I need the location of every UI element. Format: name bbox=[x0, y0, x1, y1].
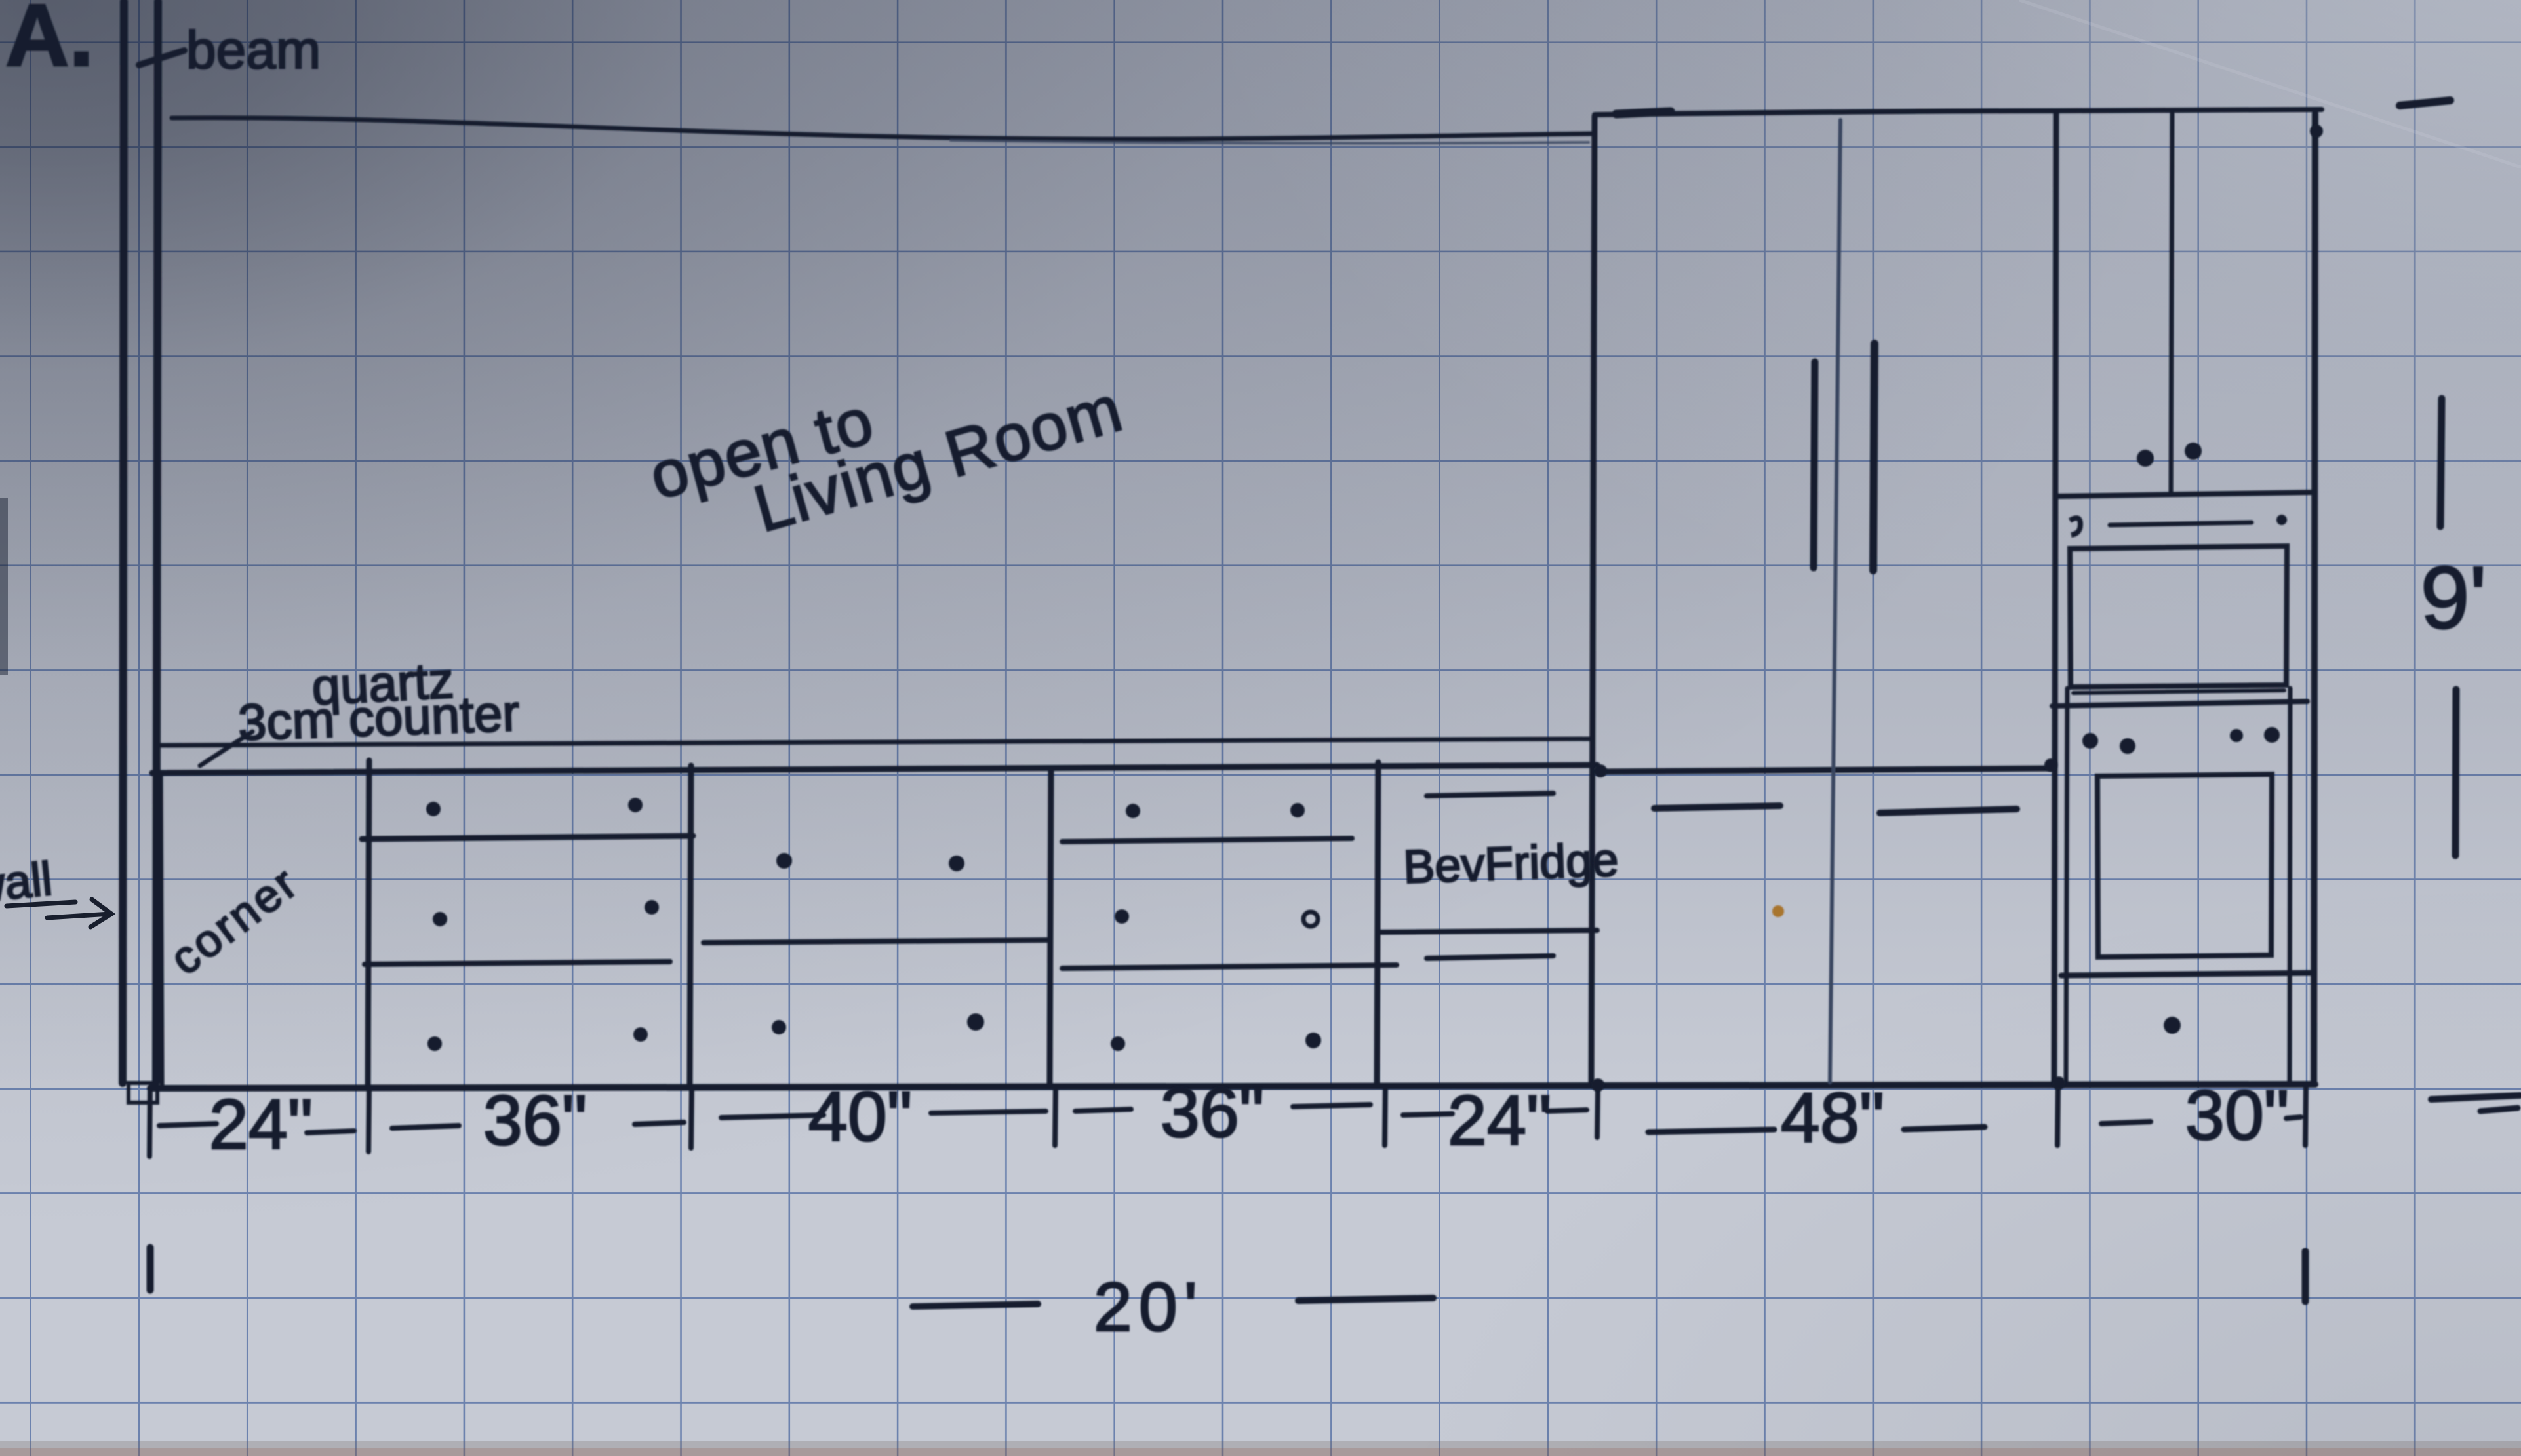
svg-text:beam: beam bbox=[186, 20, 321, 80]
svg-text:36": 36" bbox=[1161, 1072, 1264, 1152]
svg-text:24": 24" bbox=[1448, 1080, 1551, 1160]
svg-text:36": 36" bbox=[483, 1080, 587, 1160]
svg-text:20': 20' bbox=[1094, 1269, 1204, 1346]
svg-text:30": 30" bbox=[2185, 1075, 2289, 1154]
svg-text:A.: A. bbox=[5, 0, 94, 85]
svg-text:24": 24" bbox=[209, 1084, 313, 1164]
svg-text:BevFridge: BevFridge bbox=[1402, 834, 1619, 894]
svg-text:9': 9' bbox=[2421, 548, 2487, 647]
svg-text:48": 48" bbox=[1781, 1078, 1884, 1157]
svg-text:3cm counter: 3cm counter bbox=[237, 684, 521, 751]
svg-text:40": 40" bbox=[808, 1076, 912, 1156]
